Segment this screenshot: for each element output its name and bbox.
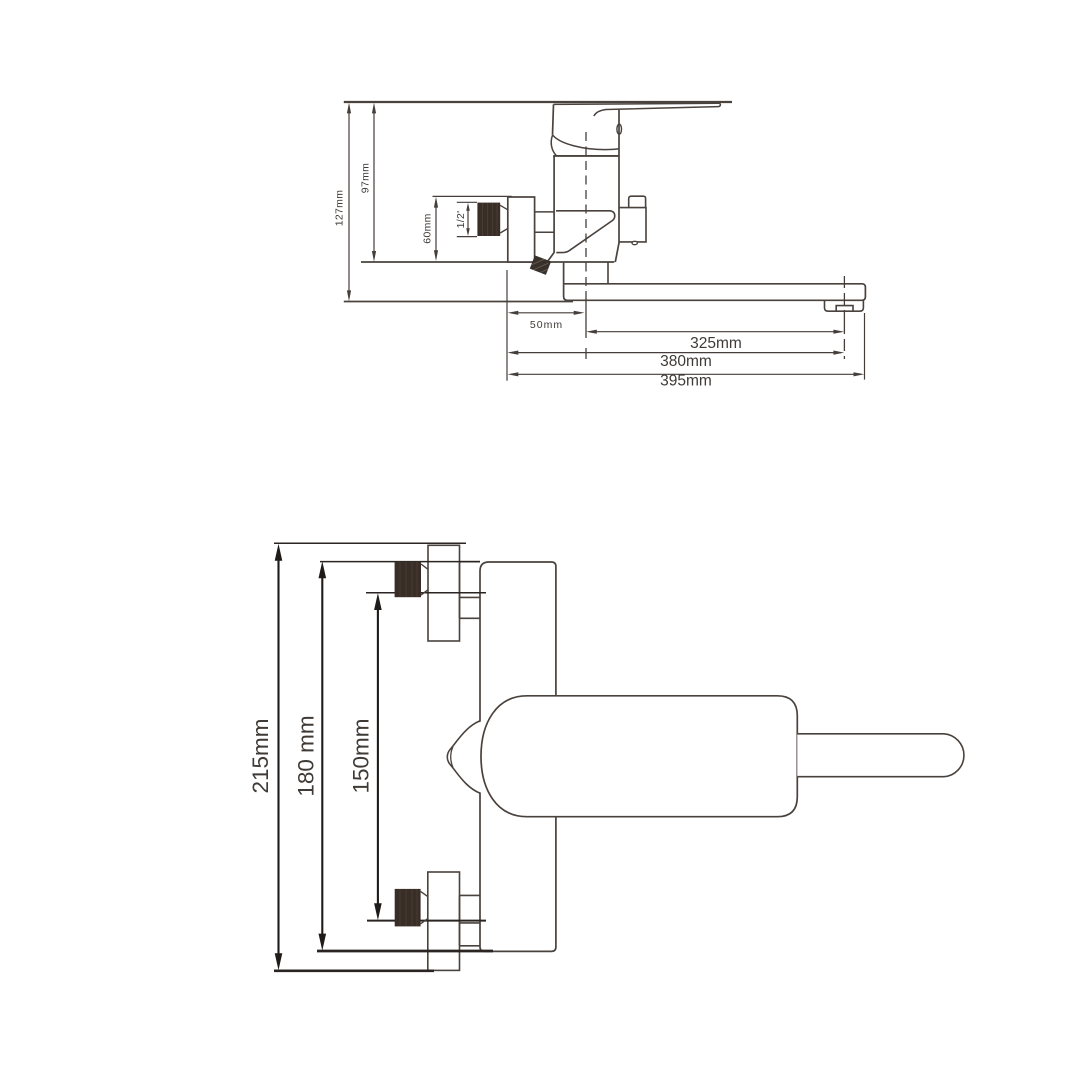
svg-text:215mm: 215mm: [248, 718, 273, 793]
svg-text:150mm: 150mm: [348, 718, 373, 793]
svg-text:395mm: 395mm: [660, 373, 712, 390]
svg-text:127mm: 127mm: [333, 190, 345, 227]
svg-text:1/2': 1/2': [455, 211, 467, 229]
svg-text:97mm: 97mm: [359, 163, 371, 193]
svg-text:325mm: 325mm: [690, 335, 742, 352]
svg-text:50mm: 50mm: [530, 319, 563, 331]
svg-text:380mm: 380mm: [660, 353, 712, 370]
svg-text:180 mm: 180 mm: [293, 715, 318, 796]
svg-text:60mm: 60mm: [421, 213, 433, 243]
